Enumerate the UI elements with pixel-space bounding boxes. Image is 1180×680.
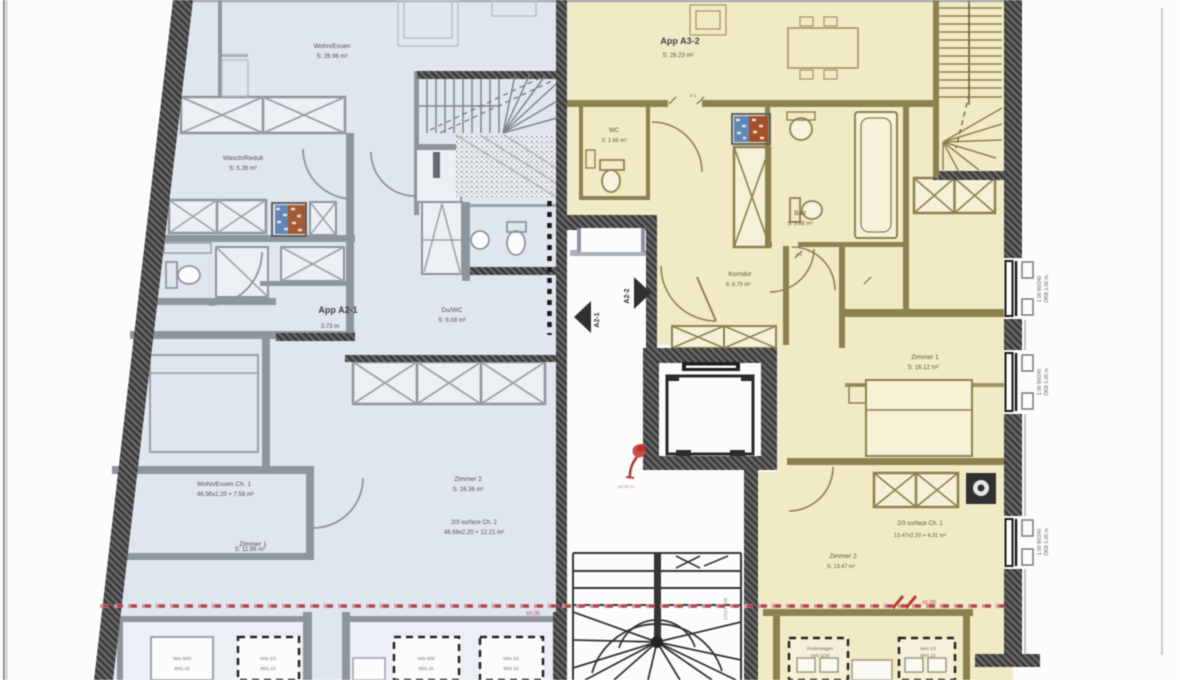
svg-text:S: 26.23 m²: S: 26.23 m² <box>662 53 693 59</box>
svg-text:±0.00: ±0.00 <box>922 600 936 606</box>
svg-text:3.73 m: 3.73 m <box>321 324 339 330</box>
svg-text:Zimmer 1: Zimmer 1 <box>911 354 939 361</box>
svg-text:A2-2: A2-2 <box>624 288 631 303</box>
svg-text:App A2-1: App A2-1 <box>318 305 357 315</box>
svg-text:App A3-2: App A3-2 <box>660 36 699 46</box>
svg-text:46.56x2.20 + 12.21 m²: 46.56x2.20 + 12.21 m² <box>444 530 504 536</box>
svg-text:Velo 500: Velo 500 <box>417 656 435 661</box>
svg-text:S: 16.12 m²: S: 16.12 m² <box>907 365 938 371</box>
svg-text:1.00 90/240: 1.00 90/240 <box>1037 369 1043 396</box>
svg-text:S: 13.47 m²: S: 13.47 m² <box>827 564 856 570</box>
svg-text:Velo 1/2: Velo 1/2 <box>503 656 520 661</box>
svg-text:Wasch/Reduit: Wasch/Reduit <box>223 155 263 162</box>
svg-text:Kinderwagen: Kinderwagen <box>807 646 834 651</box>
svg-text:4 1: 4 1 <box>690 93 697 98</box>
svg-text:Zimmer 2: Zimmer 2 <box>454 476 482 483</box>
svg-text:S: 8.79 m²: S: 8.79 m² <box>725 282 751 288</box>
svg-text:90/1.10: 90/1.10 <box>503 666 519 671</box>
svg-text:Wohn/Essen: Wohn/Essen <box>314 43 351 50</box>
svg-text:Zimmer 2: Zimmer 2 <box>829 553 857 560</box>
svg-text:46.56x2.20 + 7.58 m²: 46.56x2.20 + 7.58 m² <box>197 492 254 498</box>
svg-text:Bad: Bad <box>794 210 806 217</box>
svg-text:Korridor: Korridor <box>728 271 752 278</box>
svg-text:Velo 1/2: Velo 1/2 <box>260 656 277 661</box>
svg-text:S: 1.65 m²: S: 1.65 m² <box>601 138 627 144</box>
svg-text:1.00 90/240: 1.00 90/240 <box>1037 529 1043 556</box>
svg-text:S: 26.96 m²: S: 26.96 m² <box>316 54 347 60</box>
svg-text:S: 16.36 m²: S: 16.36 m² <box>452 487 483 493</box>
svg-text:A2-1: A2-1 <box>594 312 601 327</box>
svg-text:2/3 surface Ch. 2: 2/3 surface Ch. 2 <box>451 520 497 526</box>
svg-text:17x17.6/28: 17x17.6/28 <box>723 597 728 620</box>
svg-text:±0.00: ±0.00 <box>526 611 540 617</box>
svg-text:Velo 1/2: Velo 1/2 <box>920 646 937 651</box>
svg-text:S: 11.86 m²: S: 11.86 m² <box>235 547 266 553</box>
svg-text:1.00 90/240: 1.00 90/240 <box>1037 276 1043 303</box>
svg-text:WC: WC <box>609 128 620 134</box>
svg-text:S: 6.08 m²: S: 6.08 m² <box>438 318 466 324</box>
svg-text:Du/WC: Du/WC <box>442 307 463 314</box>
svg-text:13.47x2.20 + 4.31 m²: 13.47x2.20 + 4.31 m² <box>894 533 946 539</box>
svg-text:S: 5.88 m²: S: 5.88 m² <box>787 221 813 227</box>
svg-text:OKB 1.00 m: OKB 1.00 m <box>1044 528 1050 555</box>
svg-text:Velo 90/2: Velo 90/2 <box>173 656 192 661</box>
svg-text:2/3 surface Ch. 1: 2/3 surface Ch. 1 <box>897 521 943 527</box>
svg-text:S: 5.36 m²: S: 5.36 m² <box>229 166 257 172</box>
svg-text:OKB 1.00 m: OKB 1.00 m <box>1044 275 1050 302</box>
svg-text:±0.00 m: ±0.00 m <box>618 484 634 489</box>
svg-text:90/1.10: 90/1.10 <box>418 666 434 671</box>
svg-text:4 1: 4 1 <box>796 252 803 257</box>
svg-text:Velo 1/10: Velo 1/10 <box>811 653 830 658</box>
svg-text:90/1.10: 90/1.10 <box>260 666 276 671</box>
svg-text:90/1.10: 90/1.10 <box>920 653 936 658</box>
svg-text:OKB 1.00 m: OKB 1.00 m <box>1044 368 1050 395</box>
svg-text:90/1.10: 90/1.10 <box>174 666 190 671</box>
svg-text:Wohn/Essen Ch. 1: Wohn/Essen Ch. 1 <box>197 481 251 488</box>
